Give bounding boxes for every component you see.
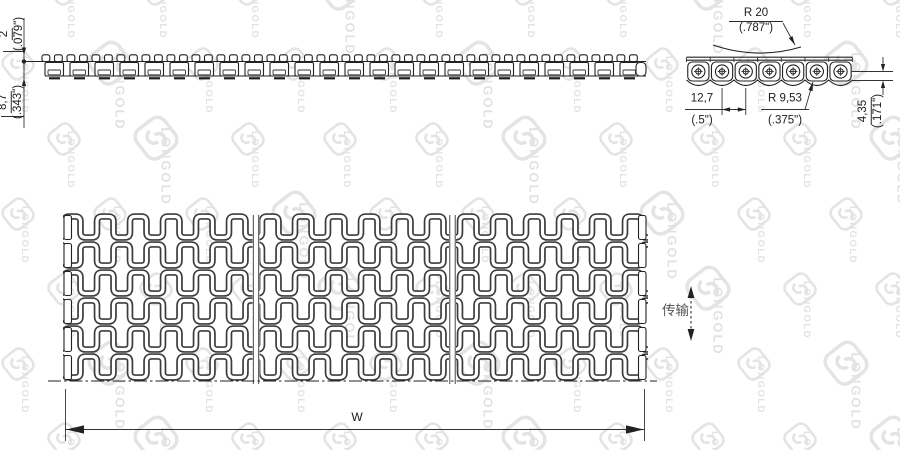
dim-hinge-radius-label: R 9,53 (.375") <box>766 92 804 127</box>
dim-surface-offset-label: 2 (.079") <box>0 15 26 53</box>
drawing-canvas <box>0 0 900 450</box>
dim-thickness-label: 8,7 (.343") <box>0 83 25 121</box>
end-view <box>687 57 853 85</box>
belt-technical-drawing: LONGOLDLONGOLDLONGOLDLONGOLDLONGOLDLONGO… <box>0 0 900 450</box>
dim-backflex-radius-label: R 20 (.787") <box>729 7 783 35</box>
top-view-mesh <box>26 212 696 385</box>
side-view <box>24 55 646 79</box>
dim-pin-offset-label: 4,35 (.171") <box>857 92 885 130</box>
belt-width-label: W <box>351 411 362 425</box>
dim-pitch-label: 12,7 (.5") <box>689 92 715 127</box>
flow-direction-label: 传输 <box>662 301 682 321</box>
